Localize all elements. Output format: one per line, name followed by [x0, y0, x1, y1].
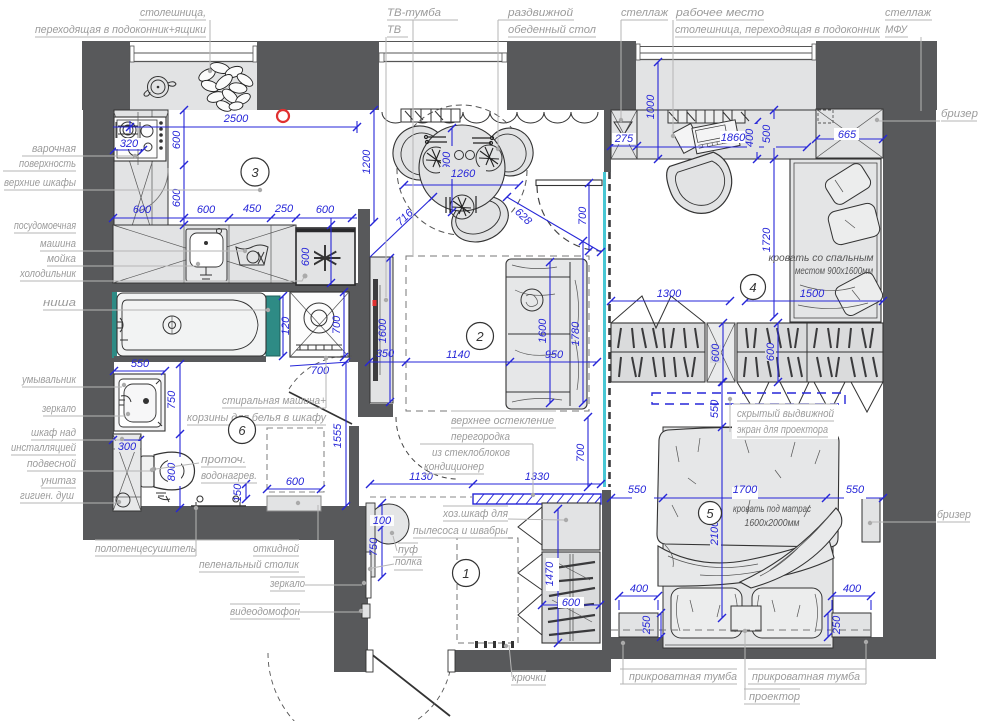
svg-text:пеленальный столик: пеленальный столик: [199, 559, 300, 571]
svg-text:400: 400: [744, 128, 756, 147]
svg-text:600: 600: [286, 476, 305, 488]
svg-text:600: 600: [171, 130, 183, 149]
svg-text:750: 750: [368, 537, 380, 556]
svg-text:бризер: бризер: [937, 509, 971, 521]
svg-text:ниша: ниша: [43, 297, 76, 309]
svg-text:2: 2: [475, 329, 484, 344]
svg-text:600: 600: [171, 188, 183, 207]
svg-text:полка: полка: [395, 556, 422, 568]
svg-text:зеркало: зеркало: [269, 578, 305, 590]
svg-text:проектор: проектор: [749, 691, 800, 703]
svg-text:350: 350: [376, 348, 395, 360]
svg-text:стиральная машина+: стиральная машина+: [222, 395, 327, 407]
svg-text:стеллаж: стеллаж: [885, 7, 931, 19]
svg-text:посудомоечная: посудомоечная: [14, 220, 76, 232]
svg-text:варочная: варочная: [32, 143, 76, 155]
svg-text:250: 250: [274, 203, 294, 215]
svg-text:275: 275: [614, 133, 634, 145]
svg-text:1700: 1700: [733, 484, 758, 496]
svg-text:столешница,: столешница,: [140, 7, 206, 19]
svg-text:раздвижной: раздвижной: [507, 7, 573, 19]
svg-text:экран для проектора: экран для проектора: [737, 424, 828, 436]
svg-text:1555: 1555: [332, 423, 344, 448]
svg-text:1260: 1260: [451, 168, 476, 180]
svg-text:пылесоса и швабры: пылесоса и швабры: [413, 525, 508, 537]
svg-text:3: 3: [251, 165, 259, 180]
svg-text:1720: 1720: [761, 227, 773, 252]
svg-text:400: 400: [630, 583, 649, 595]
svg-text:зеркало: зеркало: [41, 403, 76, 415]
svg-text:проточ.: проточ.: [201, 454, 246, 466]
svg-text:600: 600: [197, 204, 216, 216]
svg-text:скрытый выдвижной: скрытый выдвижной: [737, 408, 834, 420]
svg-text:550: 550: [131, 358, 150, 370]
svg-text:подвесной: подвесной: [27, 458, 76, 470]
svg-text:видеодомофон: видеодомофон: [230, 606, 300, 618]
svg-text:1600х2000мм: 1600х2000мм: [745, 518, 800, 529]
svg-text:550: 550: [628, 484, 647, 496]
svg-text:100: 100: [373, 515, 392, 527]
svg-text:750: 750: [166, 390, 178, 409]
svg-text:стеллаж: стеллаж: [621, 7, 668, 19]
svg-text:местом 900х1600мм: местом 900х1600мм: [795, 266, 873, 277]
svg-text:120: 120: [280, 316, 292, 335]
svg-text:1: 1: [462, 566, 469, 581]
svg-text:6: 6: [238, 423, 246, 438]
svg-text:столешница, переходящая в подо: столешница, переходящая в подоконник: [675, 24, 881, 36]
svg-text:поверхность: поверхность: [19, 158, 76, 170]
svg-text:600: 600: [133, 204, 152, 216]
svg-text:умывальник: умывальник: [21, 374, 77, 386]
svg-text:500: 500: [761, 124, 773, 143]
svg-text:1780: 1780: [570, 321, 582, 346]
svg-text:бризер: бризер: [941, 108, 978, 120]
svg-text:инсталляцией: инсталляцией: [11, 442, 76, 454]
svg-text:700: 700: [331, 315, 343, 334]
svg-text:полотенцесушитель: полотенцесушитель: [95, 543, 196, 555]
svg-text:шкаф над: шкаф над: [31, 427, 76, 439]
svg-text:хоз.шкаф для: хоз.шкаф для: [442, 508, 508, 520]
svg-text:300: 300: [118, 441, 137, 453]
svg-text:водонагрев.: водонагрев.: [201, 470, 257, 482]
svg-text:холодильник: холодильник: [19, 268, 77, 280]
svg-text:2500: 2500: [223, 113, 249, 125]
svg-text:крючки: крючки: [512, 672, 546, 684]
svg-text:рабочее место: рабочее место: [675, 7, 764, 19]
svg-text:1330: 1330: [525, 471, 550, 483]
svg-text:600: 600: [710, 343, 722, 362]
svg-text:из стеклоблоков: из стеклоблоков: [432, 447, 510, 459]
svg-text:мойка: мойка: [47, 253, 76, 265]
svg-text:1140: 1140: [446, 349, 471, 361]
svg-text:700: 700: [577, 206, 589, 225]
svg-text:перегородка: перегородка: [451, 431, 510, 443]
svg-text:1300: 1300: [657, 288, 682, 300]
svg-text:прикроватная тумба: прикроватная тумба: [752, 671, 860, 683]
svg-text:корзины для белья в шкафу: корзины для белья в шкафу: [187, 412, 327, 424]
svg-text:пуф: пуф: [398, 544, 418, 556]
svg-text:1500: 1500: [800, 288, 825, 300]
svg-text:550: 550: [846, 484, 865, 496]
svg-text:унитаз: унитаз: [40, 475, 76, 487]
svg-text:5: 5: [706, 506, 714, 521]
svg-text:1470: 1470: [544, 561, 556, 586]
svg-text:ТВ: ТВ: [387, 24, 401, 36]
svg-text:переходящая в подоконник+ящики: переходящая в подоконник+ящики: [35, 24, 206, 36]
svg-text:верхние шкафы: верхние шкафы: [4, 177, 76, 189]
svg-text:прикроватная тумба: прикроватная тумба: [629, 671, 737, 683]
svg-text:гигиен. душ: гигиен. душ: [20, 490, 74, 502]
svg-text:ТВ-тумба: ТВ-тумба: [387, 7, 441, 19]
svg-text:4: 4: [749, 280, 756, 295]
svg-text:665: 665: [838, 129, 857, 141]
svg-text:320: 320: [120, 138, 139, 150]
svg-text:450: 450: [243, 203, 262, 215]
svg-text:700: 700: [311, 365, 330, 377]
svg-text:800: 800: [166, 462, 178, 481]
svg-text:откидной: откидной: [253, 543, 299, 555]
svg-text:МФУ: МФУ: [885, 24, 908, 36]
svg-text:верхнее остекление: верхнее остекление: [451, 415, 554, 427]
svg-text:700: 700: [575, 443, 587, 462]
svg-text:550: 550: [709, 399, 721, 418]
svg-text:150: 150: [232, 483, 244, 502]
svg-text:машина: машина: [40, 238, 76, 250]
svg-text:кондиционер: кондиционер: [424, 461, 484, 473]
svg-text:600: 600: [562, 597, 581, 609]
svg-text:1600: 1600: [377, 318, 389, 343]
svg-text:1000: 1000: [645, 94, 657, 119]
svg-text:1200: 1200: [361, 149, 373, 174]
svg-text:кровать под матрас: кровать под матрас: [733, 504, 811, 515]
svg-text:250: 250: [831, 615, 843, 635]
svg-text:кровать со спальным: кровать со спальным: [769, 253, 874, 264]
svg-text:обеденный стол: обеденный стол: [508, 24, 596, 36]
svg-text:600: 600: [300, 247, 312, 266]
svg-text:250: 250: [641, 615, 653, 635]
svg-text:400: 400: [843, 583, 862, 595]
svg-text:600: 600: [316, 204, 335, 216]
svg-text:950: 950: [545, 349, 564, 361]
svg-text:1600: 1600: [537, 318, 549, 343]
svg-text:600: 600: [765, 342, 777, 361]
svg-text:1860: 1860: [721, 132, 746, 144]
